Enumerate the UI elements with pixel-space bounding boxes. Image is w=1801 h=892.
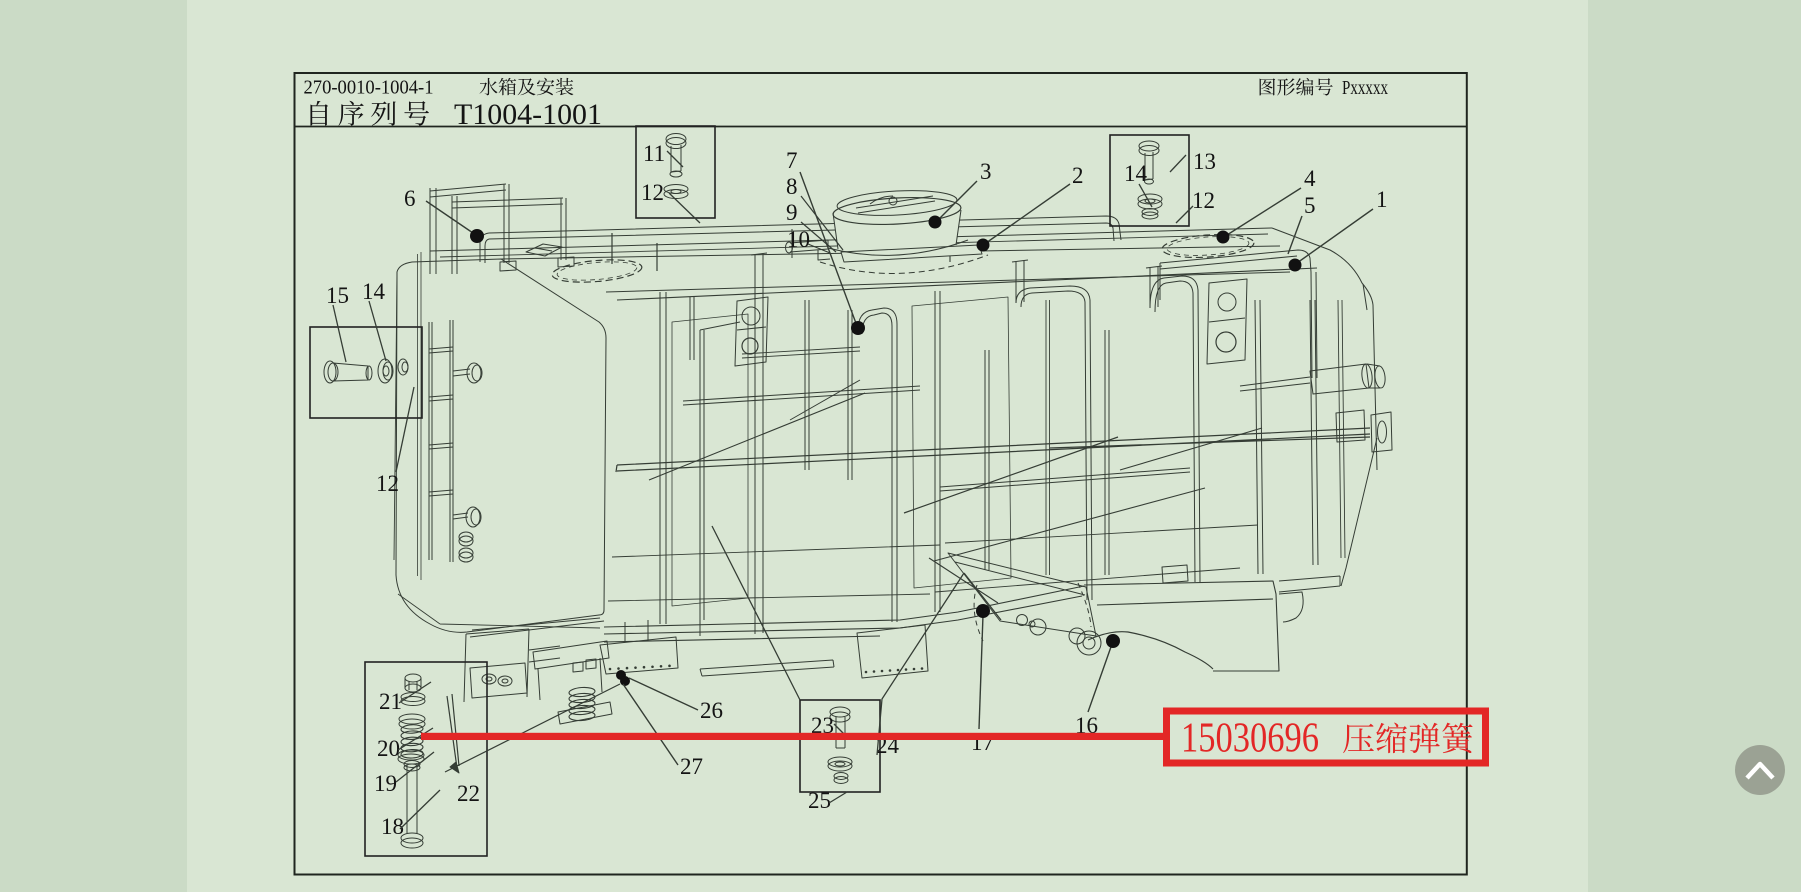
svg-text:15030696: 15030696 bbox=[1181, 716, 1319, 762]
svg-text:6: 6 bbox=[404, 186, 416, 211]
svg-text:27: 27 bbox=[680, 754, 703, 779]
svg-text:3: 3 bbox=[980, 159, 992, 184]
svg-text:8: 8 bbox=[786, 174, 798, 199]
svg-text:12: 12 bbox=[641, 180, 664, 205]
svg-text:270-0010-1004-1: 270-0010-1004-1 bbox=[304, 77, 434, 99]
svg-text:4: 4 bbox=[1304, 166, 1316, 191]
svg-text:10: 10 bbox=[787, 227, 810, 252]
svg-text:T1004-1001: T1004-1001 bbox=[454, 98, 602, 131]
svg-text:5: 5 bbox=[1304, 193, 1316, 218]
svg-text:Pxxxxx: Pxxxxx bbox=[1342, 77, 1388, 99]
svg-text:26: 26 bbox=[700, 698, 723, 723]
svg-text:12: 12 bbox=[1192, 188, 1215, 213]
svg-text:12: 12 bbox=[376, 471, 399, 496]
svg-text:19: 19 bbox=[374, 771, 397, 796]
svg-text:14: 14 bbox=[1124, 161, 1148, 186]
svg-text:9: 9 bbox=[786, 200, 798, 225]
svg-text:14: 14 bbox=[362, 279, 386, 304]
svg-text:18: 18 bbox=[381, 814, 404, 839]
svg-text:20: 20 bbox=[377, 736, 400, 761]
svg-text:1: 1 bbox=[1376, 187, 1388, 212]
svg-text:7: 7 bbox=[786, 148, 798, 173]
svg-text:13: 13 bbox=[1193, 149, 1216, 174]
svg-text:25: 25 bbox=[808, 788, 831, 813]
svg-text:21: 21 bbox=[379, 689, 402, 714]
svg-text:2: 2 bbox=[1072, 163, 1084, 188]
svg-text:15: 15 bbox=[326, 283, 349, 308]
svg-text:22: 22 bbox=[457, 781, 480, 806]
svg-text:11: 11 bbox=[643, 141, 665, 166]
